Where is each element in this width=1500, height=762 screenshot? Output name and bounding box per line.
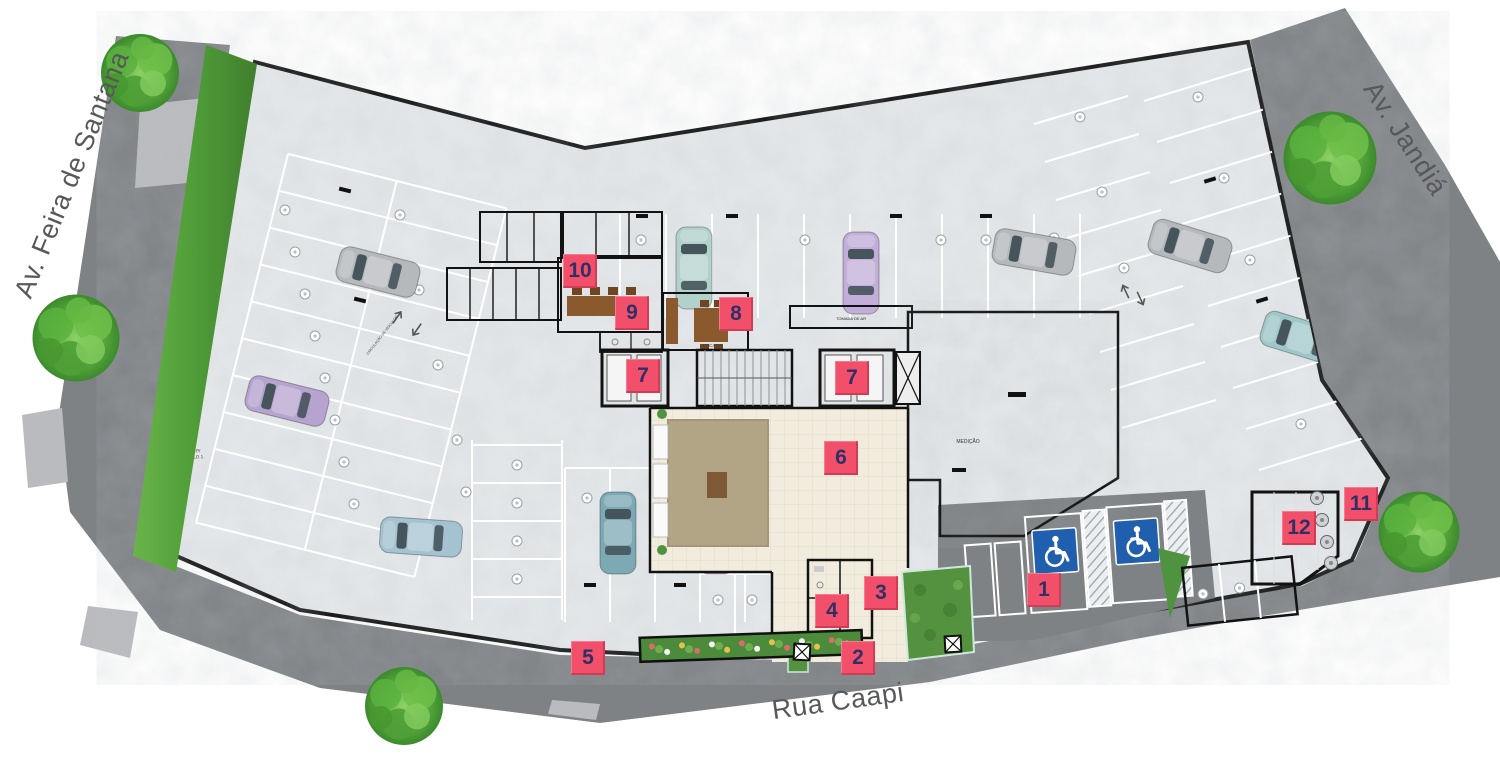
- marker-10[interactable]: 10: [563, 254, 597, 288]
- sofa: [653, 425, 668, 459]
- marker-6[interactable]: 6: [824, 441, 858, 475]
- plan-drawing: DESCE P/ SUBSOLO 1: [0, 0, 1500, 762]
- entrance-gate-icon: [794, 644, 811, 661]
- marker-4[interactable]: 4: [815, 594, 849, 628]
- marker-5[interactable]: 5: [571, 641, 605, 675]
- marker-11[interactable]: 11: [1344, 487, 1378, 521]
- tree: [1284, 112, 1377, 205]
- entrance-gate-icon: [945, 636, 962, 653]
- metering-label: MEDIÇÃO: [956, 438, 979, 445]
- marker-8[interactable]: 8: [719, 297, 753, 331]
- bench: [666, 298, 678, 344]
- marker-3[interactable]: 3: [864, 576, 898, 610]
- car: [379, 516, 463, 558]
- wheelchair-icon: [1113, 518, 1160, 565]
- sofa: [653, 464, 668, 498]
- marker-2[interactable]: 2: [841, 641, 875, 675]
- marker-9[interactable]: 9: [615, 296, 649, 330]
- coffee-table: [707, 472, 727, 498]
- car: [676, 227, 712, 309]
- site-plan: DESCE P/ SUBSOLO 1: [0, 0, 1500, 762]
- tree: [33, 295, 120, 382]
- marker-7-right[interactable]: 7: [835, 361, 869, 395]
- sofa: [653, 503, 668, 537]
- marker-12[interactable]: 12: [1282, 511, 1316, 545]
- car: [600, 492, 636, 574]
- plant: [657, 545, 667, 555]
- marker-1[interactable]: 1: [1027, 573, 1061, 607]
- stairs-label: ESCADA: [703, 343, 723, 348]
- tree: [365, 667, 443, 745]
- plant: [657, 409, 667, 419]
- wheelchair-icon: [1032, 528, 1079, 575]
- tree: [1379, 492, 1460, 573]
- car: [843, 232, 879, 314]
- marker-7-left[interactable]: 7: [626, 359, 660, 393]
- air-intake-label: TOMADA DE AR: [836, 316, 866, 321]
